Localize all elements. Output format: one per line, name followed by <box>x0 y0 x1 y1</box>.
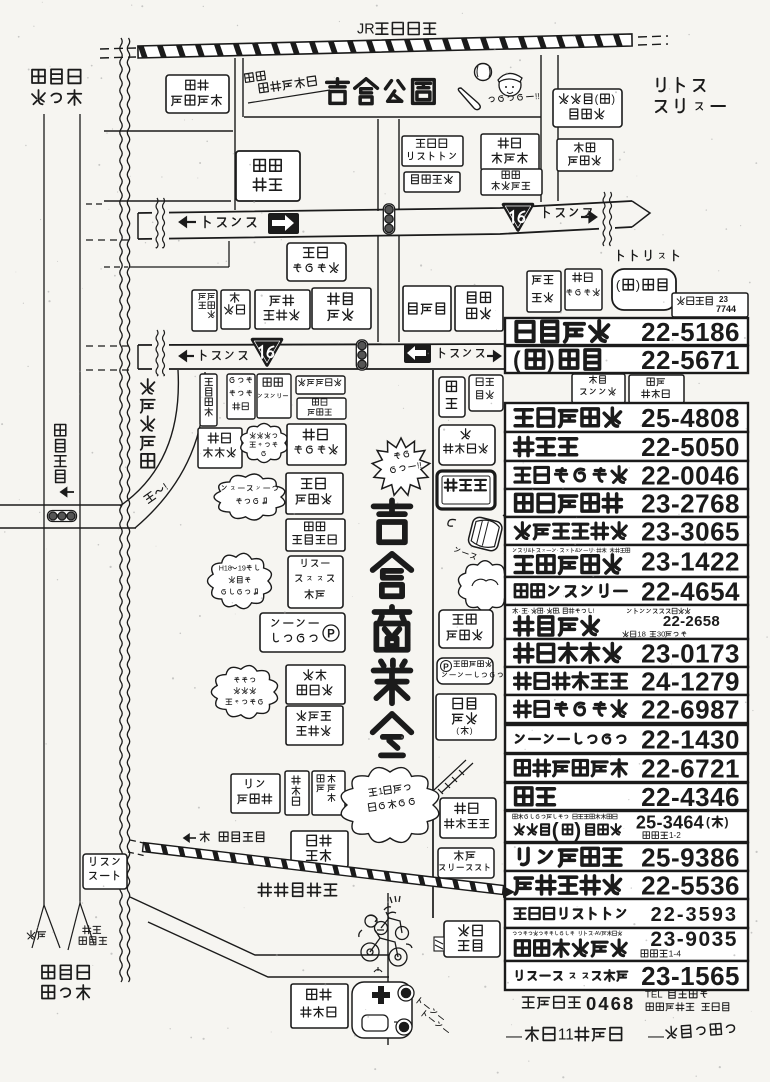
svg-text:·AV: ·AV <box>593 931 602 937</box>
svg-text:!!: !! <box>535 91 540 101</box>
svg-text:(: ( <box>456 726 459 736</box>
svg-text:23-9035: 23-9035 <box>650 928 738 951</box>
svg-text:25-9386: 25-9386 <box>641 842 740 872</box>
svg-text:): ) <box>725 815 729 829</box>
svg-text:—: — <box>648 1028 664 1045</box>
svg-text:(: ( <box>706 815 710 829</box>
svg-text:(: ( <box>595 94 599 106</box>
svg-text:): ) <box>636 277 640 292</box>
svg-text:22-4654: 22-4654 <box>641 576 740 606</box>
svg-text:22-5186: 22-5186 <box>641 317 740 347</box>
svg-text:23: 23 <box>719 295 728 304</box>
svg-text:(: ( <box>616 277 621 292</box>
svg-text:22-6721: 22-6721 <box>641 753 740 783</box>
svg-text:23-1422: 23-1422 <box>641 546 740 576</box>
svg-text:&: & <box>528 548 532 554</box>
svg-text:P: P <box>327 629 335 641</box>
svg-text:·: · <box>518 608 520 615</box>
svg-text:22-5050: 22-5050 <box>641 432 740 462</box>
svg-text:JR: JR <box>357 22 375 38</box>
svg-text:23-3065: 23-3065 <box>641 516 740 546</box>
svg-text:22-6987: 22-6987 <box>641 694 740 724</box>
svg-text:22-2658: 22-2658 <box>663 613 720 630</box>
svg-text:!: ! <box>593 608 595 615</box>
svg-text:1-4: 1-4 <box>669 949 682 959</box>
svg-text:30: 30 <box>657 630 666 639</box>
svg-text:25-4808: 25-4808 <box>641 403 740 433</box>
svg-text:7744: 7744 <box>716 304 736 314</box>
svg-text:,: , <box>559 608 561 615</box>
svg-text:): ) <box>574 819 581 842</box>
svg-text:19: 19 <box>238 563 246 572</box>
svg-text:22-1430: 22-1430 <box>641 724 740 754</box>
svg-text:23-0173: 23-0173 <box>641 638 740 668</box>
svg-text:11: 11 <box>558 1026 574 1043</box>
svg-text:): ) <box>470 726 473 736</box>
svg-text:0468: 0468 <box>586 993 635 1014</box>
svg-text:22-5671: 22-5671 <box>641 345 740 375</box>
svg-text:·: · <box>528 608 530 615</box>
svg-text:25-3464: 25-3464 <box>636 813 704 833</box>
svg-text:&: & <box>575 548 579 554</box>
svg-text:18: 18 <box>637 630 646 639</box>
svg-text:22-0046: 22-0046 <box>641 460 740 490</box>
svg-text:22-3593: 22-3593 <box>651 904 738 926</box>
svg-text:): ) <box>547 347 555 373</box>
svg-text:1-2: 1-2 <box>669 831 681 840</box>
svg-text:22-5536: 22-5536 <box>641 870 740 900</box>
svg-text:(: ( <box>513 347 521 373</box>
svg-text:23-2768: 23-2768 <box>641 488 740 518</box>
svg-text:22-4346: 22-4346 <box>641 782 740 812</box>
svg-text:23-1565: 23-1565 <box>641 961 740 991</box>
svg-text:P: P <box>443 662 449 672</box>
svg-text:24-1279: 24-1279 <box>641 666 740 696</box>
svg-text:TEL: TEL <box>645 989 663 1000</box>
svg-text:—: — <box>506 1028 522 1045</box>
svg-text:·: · <box>543 608 545 615</box>
svg-text:·: · <box>557 548 559 554</box>
svg-text:): ) <box>611 94 615 106</box>
svg-text:H18: H18 <box>219 563 232 572</box>
svg-text:(: ( <box>552 819 559 842</box>
